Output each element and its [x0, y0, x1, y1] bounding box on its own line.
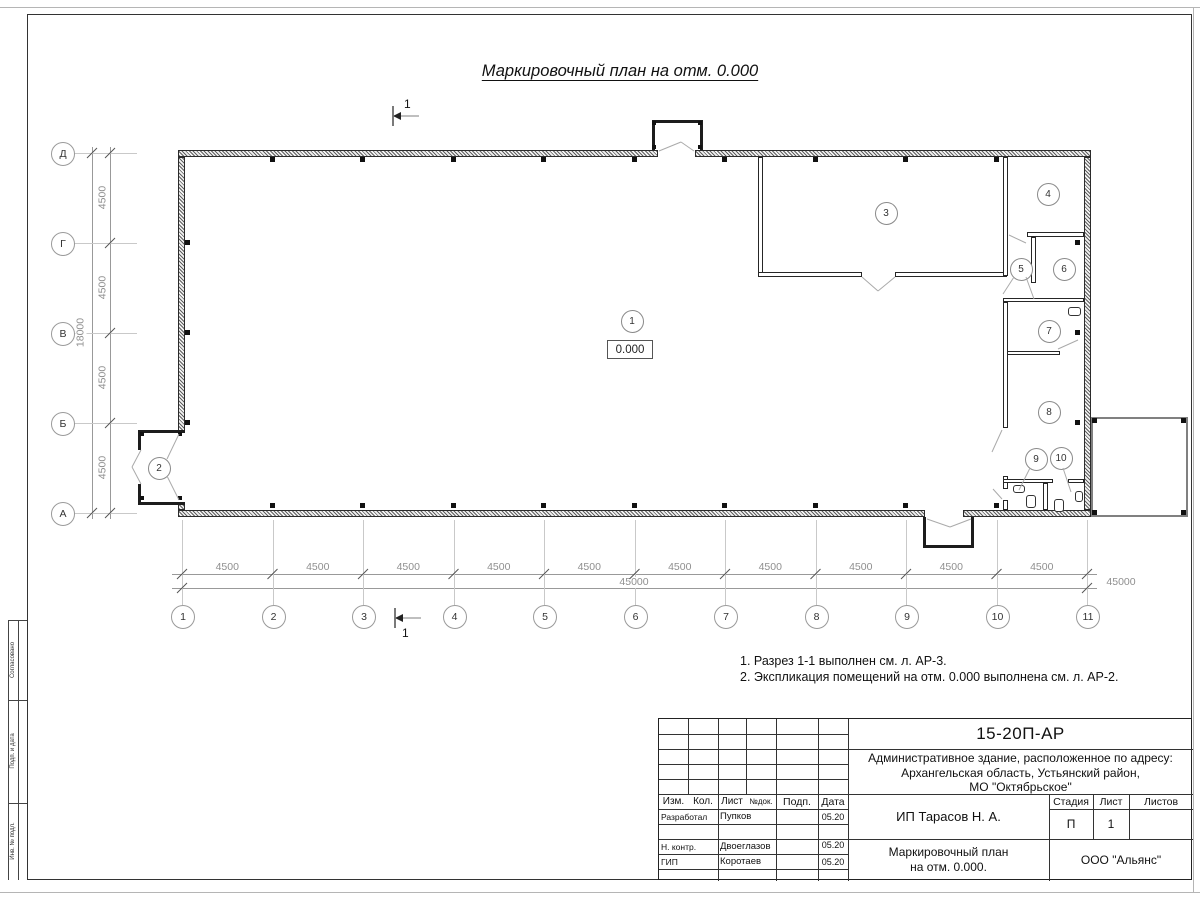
axis-number-bubble: 4: [443, 605, 467, 629]
exterior-wall: [1084, 157, 1091, 510]
column-marker: [1075, 240, 1080, 245]
drawing-line: [659, 764, 848, 765]
column-marker: [360, 503, 365, 508]
section-mark-label-bottom: 1: [402, 626, 409, 640]
col-data: Дата: [818, 794, 848, 809]
dimension-label: 4500: [841, 562, 881, 573]
sig-date: 05.20: [818, 837, 848, 852]
partition-wall: [1003, 157, 1008, 276]
column-marker: [451, 157, 456, 162]
sig-role: ГИП: [661, 854, 718, 869]
extension-line: [635, 520, 636, 605]
section-mark-label-top: 1: [404, 97, 411, 111]
stage-value: П: [1049, 809, 1093, 839]
column-marker: [185, 330, 190, 335]
corner-post: [652, 121, 656, 125]
dimension-label: 4500: [207, 562, 247, 573]
dimension-label: 4500: [388, 562, 428, 573]
toilet-icon: [1026, 495, 1036, 508]
column-marker: [270, 157, 275, 162]
room-number-bubble: 2: [148, 457, 171, 480]
porch-wall: [138, 502, 185, 505]
extension-line: [363, 520, 364, 605]
column-marker: [994, 157, 999, 162]
drawing-line: [659, 824, 848, 825]
corner-post: [178, 432, 182, 436]
exterior-wall: [178, 510, 925, 517]
axis-letter-bubble: В: [51, 322, 75, 346]
sink-icon: [1013, 485, 1025, 493]
room-number-bubble: 8: [1038, 401, 1061, 424]
col-list: Лист: [718, 794, 746, 809]
axis-number-bubble: 3: [352, 605, 376, 629]
column-marker: [903, 157, 908, 162]
dimension-total-label: 45000: [604, 577, 664, 588]
corner-post: [140, 496, 144, 500]
exterior-wall: [178, 157, 185, 432]
sig-name: Двоеглазов: [720, 839, 776, 854]
extension-line: [73, 423, 137, 424]
axis-number-bubble: 8: [805, 605, 829, 629]
column-marker: [813, 503, 818, 508]
extension-line: [1087, 520, 1088, 605]
project-address-line: Архангельская область, Устьянский район,: [848, 765, 1193, 780]
column-marker: [903, 503, 908, 508]
col-izm: Изм.: [659, 794, 688, 809]
column-marker: [270, 503, 275, 508]
dimension-label: 4500: [660, 562, 700, 573]
column-marker: [632, 157, 637, 162]
sheet-value: 1: [1093, 809, 1129, 839]
column-marker: [1075, 420, 1080, 425]
axis-number-bubble: 1: [171, 605, 195, 629]
note-line: 1. Разрез 1-1 выполнен см. л. АР-3.: [740, 654, 1118, 670]
partition-wall: [758, 272, 862, 277]
axis-number-bubble: 9: [895, 605, 919, 629]
axis-letter-bubble: Г: [51, 232, 75, 256]
extension-line: [544, 520, 545, 605]
partition-wall: [1007, 351, 1060, 355]
doc-number: 15-20П-АР: [848, 719, 1193, 749]
extension-line: [73, 243, 137, 244]
drawing-line: [659, 779, 848, 780]
sig-date: 05.20: [818, 854, 848, 869]
room-number-bubble: 7: [1038, 320, 1061, 343]
extension-line: [906, 520, 907, 605]
drawing-sheet: Согласовано Подп. и дата Инв. № подл. Ма…: [0, 0, 1200, 900]
corner-post: [652, 145, 656, 149]
extension-line: [997, 520, 998, 605]
room-number-bubble: 10: [1050, 447, 1073, 470]
platform-post: [1092, 418, 1097, 423]
sink-icon: [1068, 307, 1081, 316]
dimension-label: 4500: [479, 562, 519, 573]
sig-role: Разработал: [661, 809, 718, 824]
axis-number-bubble: 10: [986, 605, 1010, 629]
room-number-bubble: 1: [621, 310, 644, 333]
platform-post: [1181, 510, 1186, 515]
room-number-bubble: 5: [1010, 258, 1033, 281]
extension-line: [182, 520, 183, 605]
partition-wall: [1003, 298, 1084, 302]
column-marker: [722, 157, 727, 162]
dimension-label: 4500: [98, 358, 109, 398]
axis-letter-bubble: А: [51, 502, 75, 526]
extension-line: [73, 513, 137, 514]
extension-line: [273, 520, 274, 605]
partition-wall: [1043, 483, 1048, 510]
axis-number-bubble: 11: [1076, 605, 1100, 629]
partition-wall: [1068, 479, 1084, 483]
axis-letter-bubble: Б: [51, 412, 75, 436]
sig-name: Коротаев: [720, 854, 776, 869]
column-marker: [632, 503, 637, 508]
corner-post: [178, 496, 182, 500]
column-marker: [185, 240, 190, 245]
sig-role: Н. контр.: [661, 839, 718, 854]
dimension-label: 4500: [569, 562, 609, 573]
partition-wall: [895, 272, 1007, 277]
column-marker: [451, 503, 456, 508]
project-address-line: МО "Октябрьское": [848, 779, 1193, 794]
sig-name: Пупков: [720, 809, 776, 824]
dimension-label: 4500: [98, 268, 109, 308]
extension-line: [454, 520, 455, 605]
col-kol: Кол.: [688, 794, 718, 809]
corner-post: [698, 121, 702, 125]
sink-icon: [1075, 491, 1083, 502]
company: ООО "Альянс": [1049, 839, 1193, 881]
sheets-label: Листов: [1129, 794, 1193, 809]
axis-letter-bubble: Д: [51, 142, 75, 166]
partition-wall: [1003, 302, 1008, 428]
drawing-title-line: на отм. 0.000.: [910, 860, 987, 875]
notes: 1. Разрез 1-1 выполнен см. л. АР-3. 2. Э…: [740, 654, 1118, 685]
dimension-label: 4500: [98, 178, 109, 218]
exterior-wall: [695, 150, 1091, 157]
column-marker: [541, 503, 546, 508]
sig-date: 05.20: [818, 809, 848, 824]
axis-number-bubble: 7: [714, 605, 738, 629]
dimension-label: 4500: [298, 562, 338, 573]
drawing-line: [659, 869, 848, 870]
dimension-total-label: 18000: [76, 310, 87, 356]
drawing-title-block: Маркировочный план на отм. 0.000.: [848, 839, 1049, 881]
dimension-label: 4500: [931, 562, 971, 573]
dimension-label: 4500: [98, 448, 109, 488]
title-block: 15-20П-АР Административное здание, распо…: [658, 718, 1192, 880]
room-number-bubble: 4: [1037, 183, 1060, 206]
drawing-line: [659, 734, 848, 735]
column-marker: [813, 157, 818, 162]
dimension-label: 4500: [750, 562, 790, 573]
porch-wall: [971, 517, 974, 548]
partition-wall: [1003, 500, 1008, 510]
exterior-wall: [963, 510, 1091, 517]
exterior-platform: [1091, 417, 1188, 517]
extension-line: [725, 520, 726, 605]
dimension-label: 4500: [1022, 562, 1062, 573]
dimension-total-label: 45000: [1091, 577, 1151, 588]
partition-wall: [1031, 237, 1036, 283]
elevation-mark: 0.000: [607, 340, 653, 359]
drawing-line: [746, 719, 747, 794]
axis-number-bubble: 6: [624, 605, 648, 629]
porch-wall: [138, 484, 141, 505]
porch-wall: [652, 120, 703, 123]
exterior-wall: [178, 150, 658, 157]
platform-post: [1092, 510, 1097, 515]
column-marker: [994, 503, 999, 508]
column-marker: [185, 420, 190, 425]
room-number-bubble: 3: [875, 202, 898, 225]
room-number-bubble: 9: [1025, 448, 1048, 471]
drawing-title-line: Маркировочный план: [889, 845, 1009, 860]
column-marker: [360, 157, 365, 162]
partition-wall: [758, 157, 763, 276]
extension-line: [816, 520, 817, 605]
toilet-icon: [1054, 499, 1064, 512]
axis-number-bubble: 5: [533, 605, 557, 629]
sheet-label: Лист: [1093, 794, 1129, 809]
extension-line: [73, 153, 137, 154]
col-ndok: №док.: [746, 794, 776, 809]
porch-wall: [923, 545, 974, 548]
column-marker: [1075, 330, 1080, 335]
room-number-bubble: 6: [1053, 258, 1076, 281]
column-marker: [541, 157, 546, 162]
corner-post: [698, 145, 702, 149]
note-line: 2. Экспликация помещений на отм. 0.000 в…: [740, 670, 1118, 686]
platform-post: [1181, 418, 1186, 423]
column-marker: [722, 503, 727, 508]
drawing-line: [688, 719, 689, 794]
project-address-line: Административное здание, расположенное п…: [848, 750, 1193, 765]
corner-post: [140, 432, 144, 436]
col-podp: Подп.: [776, 794, 818, 809]
stage-label: Стадия: [1049, 794, 1093, 809]
axis-number-bubble: 2: [262, 605, 286, 629]
sheets-value: [1129, 809, 1193, 839]
porch-wall: [923, 517, 926, 548]
client: ИП Тарасов Н. А.: [848, 794, 1049, 839]
